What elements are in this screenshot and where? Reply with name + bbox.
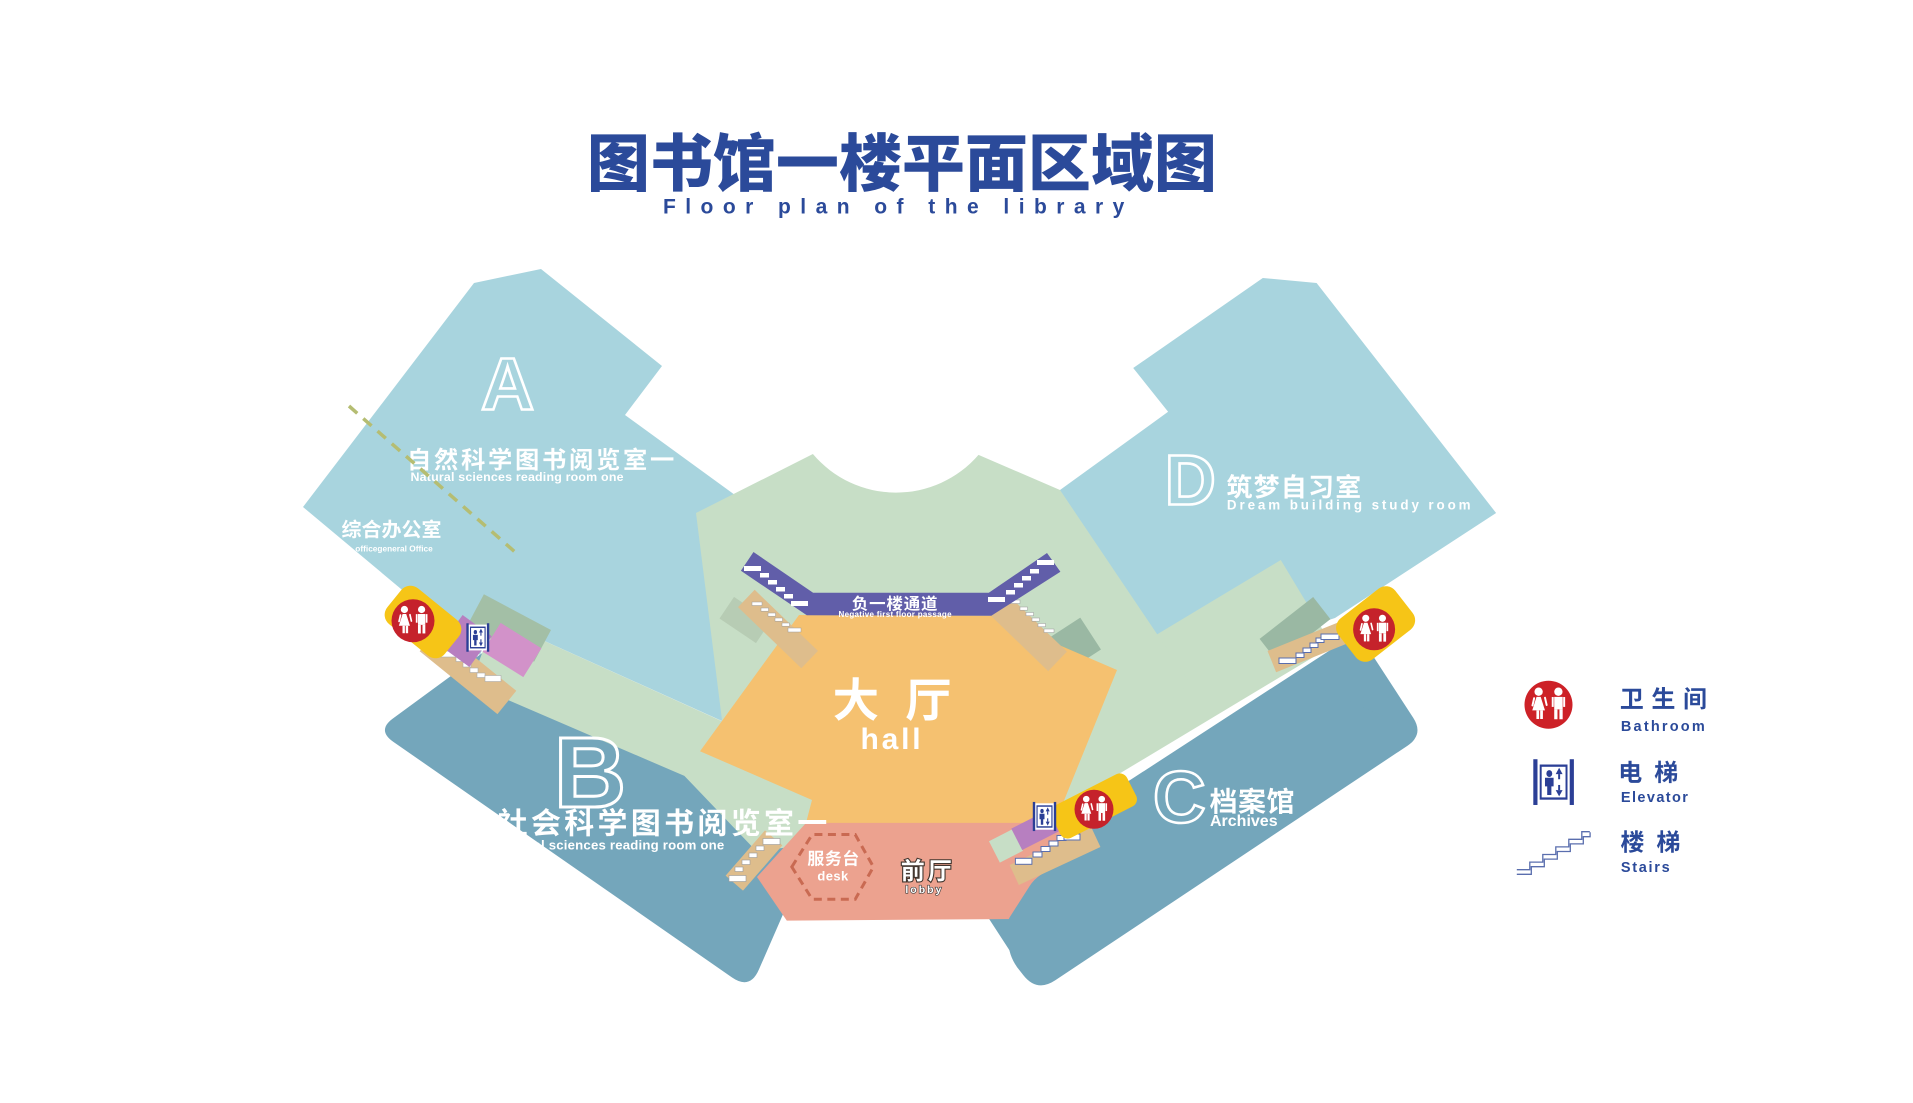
svg-text:A: A [481,342,534,425]
svg-text:officegeneral Office: officegeneral Office [355,544,433,554]
svg-text:Bathroom: Bathroom [1621,719,1707,735]
svg-text:Natural sciences reading room: Natural sciences reading room one [498,837,724,852]
svg-text:hall: hall [860,723,923,756]
svg-text:lobby: lobby [905,884,943,896]
svg-text:Floor plan of the library: Floor plan of the library [663,196,1134,219]
svg-text:Negative first floor passage: Negative first floor passage [839,610,953,619]
svg-text:Archives: Archives [1210,813,1278,830]
svg-text:Elevator: Elevator [1621,790,1689,806]
svg-text:Natural sciences reading room: Natural sciences reading room one [411,470,624,484]
svg-text:desk: desk [817,868,849,883]
svg-text:Stairs: Stairs [1621,860,1672,876]
svg-text:C: C [1153,757,1206,838]
svg-text:D: D [1165,441,1216,520]
svg-text:Dream building study room: Dream building study room [1227,498,1474,513]
svg-text:B: B [554,717,626,829]
